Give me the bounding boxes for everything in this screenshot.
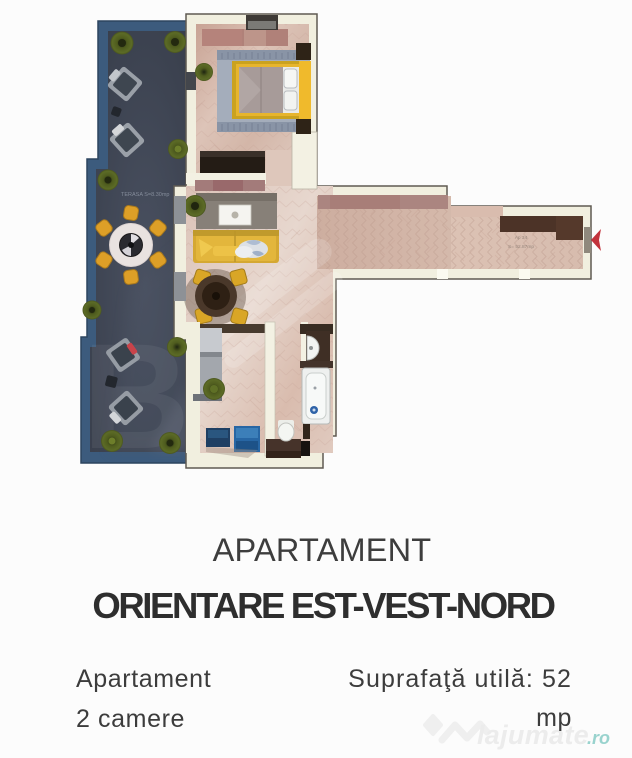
svg-text:.ro: .ro (587, 728, 610, 748)
svg-text:TERASA S=8.30mp: TERASA S=8.30mp (121, 192, 169, 198)
svg-text:S= 52.87mp: S= 52.87mp (508, 244, 534, 250)
svg-text:lajumate: lajumate (477, 720, 589, 750)
svg-text:Ap 34: Ap 34 (515, 235, 528, 241)
